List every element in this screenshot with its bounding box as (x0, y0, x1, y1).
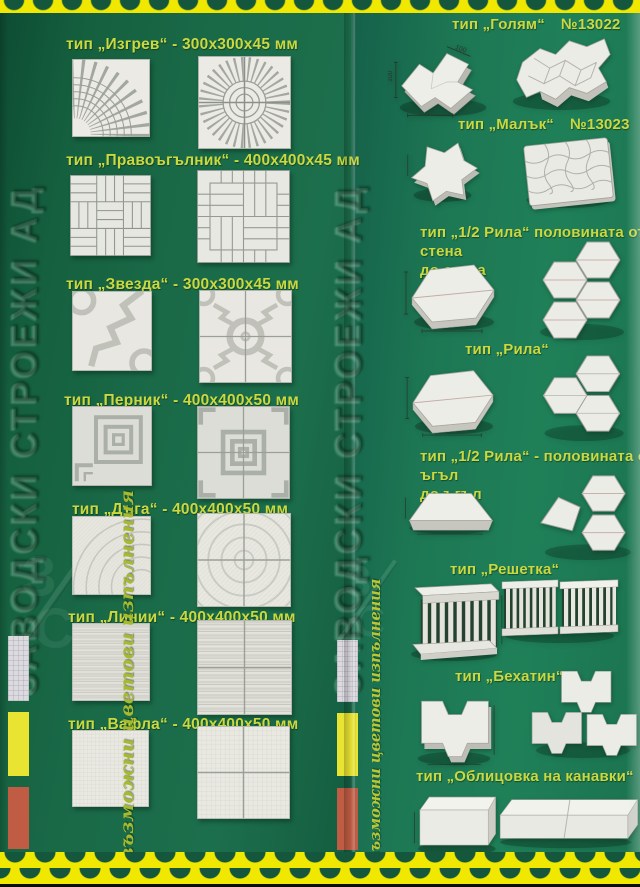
paver-photo-rila-single (402, 358, 502, 438)
tile-image-linii-single (72, 623, 150, 701)
paver-photo-behatin-single (406, 686, 502, 770)
paver-photo-polovin-rila-agal-single (398, 480, 502, 536)
color-swatch-white-left (8, 636, 29, 701)
color-swatch-yellow-left (8, 712, 29, 776)
zs-logo-emboss-right (330, 540, 402, 655)
color-swatch-white-right (337, 640, 358, 702)
tile-image-zvezda-laid (199, 290, 292, 383)
scalloped-border-top (0, 0, 640, 13)
scalloped-border-bottom (0, 852, 640, 884)
color-swatch-yellow-right (337, 713, 358, 776)
color-swatch-red-left (8, 787, 29, 849)
paver-photo-behatin-assembled (526, 660, 640, 762)
paver-photo-rila-assembled (538, 350, 638, 445)
paver-photo-golyam-single (388, 36, 496, 122)
product-label-pravoagalnik: тип „Правоъгълник“ - 400х400х45 мм (66, 151, 360, 170)
catalog-number: №13023 (570, 116, 630, 133)
product-label-rila: тип „Рила“ (465, 341, 549, 360)
tile-image-linii-laid (197, 620, 292, 715)
tile-image-izgrev-single (72, 59, 150, 137)
color-swatch-red-right (337, 788, 358, 850)
paver-photo-polovin-rila-agal-assembled (528, 468, 640, 562)
swatch-caption-left: възможни цветови изпълнения (116, 586, 138, 860)
tile-image-pravoagalnik-laid (197, 170, 290, 263)
paver-photo-oblitsovka-pair (490, 790, 640, 850)
paver-photo-golyam-assembled (505, 28, 617, 116)
paver-photo-reshetka-pair (498, 574, 622, 646)
paver-photo-polovin-rila-stena-assembled (532, 238, 636, 342)
tile-image-daga-laid (197, 513, 291, 607)
swatch-caption-right: възможни цветови изпълнения (367, 629, 384, 861)
paver-photo-malak-assembled (514, 132, 620, 212)
tile-image-vafla-laid (197, 726, 290, 819)
paver-photo-reshetka-single (402, 576, 506, 662)
tile-image-pernik-laid (197, 406, 290, 499)
tile-image-pernik-single (72, 406, 152, 486)
paver-photo-polovin-rila-stena-single (400, 252, 504, 334)
tile-image-pravoagalnik-single (70, 175, 151, 256)
brochure-page: ЗАВОДСКИ СТРОЕЖИ АД ЗАВОДСКИ СТРОЕЖИ АД … (0, 0, 640, 887)
product-label-izgrev: тип „Изгрев“ - 300х300х45 мм (66, 35, 298, 54)
tile-image-izgrev-laid (198, 56, 291, 149)
product-label-oblitsovka: тип „Облицовка на канавки“ (416, 768, 634, 787)
paver-photo-malak-single (402, 136, 484, 208)
tile-image-daga-single (72, 516, 151, 595)
tile-image-zvezda-single (72, 291, 152, 371)
